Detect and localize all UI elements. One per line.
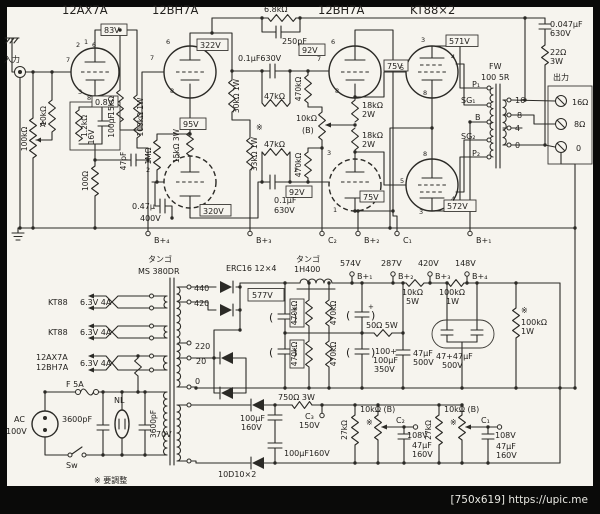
lbl-out8: 8Ω [574, 120, 585, 129]
lbl-v150: 150V [299, 421, 320, 430]
lbl-r18k-a: 18kΩ [362, 101, 383, 110]
lbl-out16: 16Ω [572, 98, 588, 107]
lbl-r1m: 1MΩ [144, 147, 153, 164]
lbl-r18k-b: 18kΩ [362, 131, 383, 140]
lbl-p2: P₂ [472, 149, 480, 158]
lbl-c1-out: C₁ [481, 416, 490, 425]
lbl-out0: 0 [576, 144, 581, 153]
lbl-nl: NL [114, 396, 125, 405]
lbl-v420: 420V [418, 259, 439, 268]
lbl-canv: 500V [442, 361, 463, 370]
lbl-div1cv: 160V [412, 450, 433, 459]
pin: 8 [87, 94, 91, 102]
lbl-pot2: 10kΩ (B) [444, 405, 479, 414]
lbl-bus-b2: B+₂ [364, 236, 379, 245]
lbl-bleeder4: 470kΩ [329, 342, 338, 367]
pin: 7 [66, 56, 70, 64]
lbl-heater2: KT88 [48, 328, 68, 337]
lbl-v577: 577V [252, 291, 273, 300]
lbl-v70: 70V [156, 430, 172, 439]
lbl-470k-a: 470kΩ [294, 77, 303, 102]
title-kt88: KT88×2 [410, 3, 455, 17]
lbl-heater1v: 6.3V 4A [80, 298, 112, 307]
lbl-v400: 400V [140, 214, 161, 223]
lbl-cc2b: 630V [274, 206, 295, 215]
lbl-pt-brand: タンゴ [148, 254, 172, 264]
lbl-c47u: 47µF [413, 349, 433, 358]
lbl-v571: 571V [449, 37, 470, 46]
lbl-zobel-r: 22Ω [550, 48, 566, 57]
lbl-opt-fw: FW [489, 62, 502, 71]
lbl-cbias1b: 160V [241, 423, 262, 432]
lbl-note: ※ 要調整 [94, 475, 127, 485]
lbl-cb1: 100+ [375, 347, 397, 356]
lbl-v92a: 92V [302, 46, 318, 55]
pin: 5 [400, 177, 404, 185]
lbl-zobel-cv: 630V [550, 29, 571, 38]
lbl-ps-b2: B+₂ [398, 272, 413, 281]
lbl-v148: 148V [455, 259, 476, 268]
terminal-b4 [146, 231, 150, 235]
lbl-v322: 322V [200, 41, 221, 50]
terminal-b3 [248, 231, 252, 235]
lbl-d10: 10D10×2 [218, 470, 256, 479]
lbl-r750: 750Ω 3W [278, 393, 315, 402]
lbl-spark2: 3600pF [149, 410, 158, 438]
lbl-heater3a: 12AX7A [36, 353, 68, 362]
lbl-sec16: 16 [515, 96, 525, 105]
pin: 6 [166, 38, 170, 46]
terminal-c2 [320, 231, 324, 235]
lbl-pot2-adj: ※ [450, 418, 457, 427]
lbl-gridr: 10kΩ [39, 106, 48, 126]
lbl-pot1: 10kΩ (B) [360, 405, 395, 414]
pin: 5 [400, 64, 404, 72]
lbl-bus-c2: C₂ [328, 236, 337, 245]
lbl-tap0: 0 [195, 377, 200, 386]
lbl-bus-b3: B+₃ [256, 236, 271, 245]
lbl-adjr2: 100kΩ [521, 318, 547, 327]
lbl-btap: B [475, 113, 481, 122]
switch-pole-1 [68, 453, 72, 457]
switch-pole-2 [82, 453, 86, 457]
lbl-zobel-c: 0.047µF [550, 20, 583, 29]
title-12bh7a-2: 12BH7A [318, 3, 364, 17]
lbl-heater1: KT88 [48, 298, 68, 307]
pin: 2 [294, 166, 298, 174]
title-12ax7a: 12AX7A [62, 3, 108, 17]
lbl-sec8: 8 [517, 111, 522, 120]
pin: 6 [92, 41, 96, 49]
lbl-output: 出力 [553, 72, 569, 82]
lbl-ckv: 16V [87, 129, 96, 145]
lbl-ps-b3: B+₃ [435, 272, 450, 281]
lbl-r18k-bw: 2W [362, 140, 375, 149]
lbl-bus-c1: C₁ [403, 236, 412, 245]
lbl-ps-b1: B+₁ [357, 272, 372, 281]
lbl-div2c: 47µF [496, 442, 516, 451]
lbl-p1: P₁ [472, 80, 480, 89]
pin: 7 [317, 55, 321, 63]
lbl-fuse: F 5A [66, 380, 84, 389]
lbl-sg1: SG₁ [461, 96, 475, 105]
lbl-r50: 50Ω 5W [366, 321, 398, 330]
lbl-ac: AC [14, 415, 25, 424]
lbl-v83: 83V [104, 26, 120, 35]
lbl-tap420: 420 [194, 299, 209, 308]
lbl-v320: 320V [203, 207, 224, 216]
scanned-schematic-page: 12AX7A 12BH7A 12BH7A KT88×2 6.8kΩ 250pF … [0, 0, 600, 514]
lbl-bal: 10kΩ [296, 114, 317, 123]
lbl-sw: Sw [66, 461, 78, 470]
pin: 8 [423, 89, 427, 97]
lbl-pt-model: MS 380DR [138, 267, 180, 276]
lbl-drop2w: 1W [446, 297, 459, 306]
lbl-tap440: 440 [194, 284, 209, 293]
pin: 3 [176, 152, 180, 160]
lbl-drop2: 100kΩ [439, 288, 465, 297]
lbl-choke-model: 1H400 [294, 265, 320, 274]
lbl-cb3: 350V [374, 365, 395, 374]
lbl-r33k: 33kΩ 1W [250, 136, 259, 171]
lbl-fb-r: 6.8kΩ [264, 5, 287, 14]
lbl-opt-model: 100 5R [481, 73, 510, 82]
schematic-svg: 12AX7A 12BH7A 12BH7A KT88×2 6.8kΩ 250pF … [0, 0, 600, 514]
lbl-c47uv: 500V [413, 358, 434, 367]
lbl-sec0: 0 [515, 141, 520, 150]
pin: 8 [170, 87, 174, 95]
lbl-ac100: 100V [6, 427, 27, 436]
pin: 1 [333, 206, 337, 214]
lbl-c047: 0.47µ [132, 202, 155, 211]
lbl-v572: 572V [447, 202, 468, 211]
lbl-r47k-a: 47kΩ [264, 92, 285, 101]
lbl-r100: 100Ω [81, 171, 90, 191]
lbl-bus-b1: B+₁ [476, 236, 491, 245]
pin: 2 [146, 166, 150, 174]
fuse-end-2 [94, 390, 99, 395]
lbl-cb2: 100µF [373, 356, 398, 365]
lbl-div2cv: 160V [496, 451, 517, 460]
lbl-fb-c: 250pF [282, 37, 307, 46]
pin: 3 [421, 36, 425, 44]
title-12bh7a-1: 12BH7A [152, 3, 198, 17]
lbl-27k-2: 27kΩ [424, 420, 433, 440]
pin: 3 [419, 208, 423, 216]
lbl-cc1: 0.1µF630V [238, 54, 282, 63]
pin: 6 [331, 38, 335, 46]
lbl-choke-brand: タンゴ [296, 254, 320, 264]
lbl-r100k1w: 100kΩ 1W [136, 97, 145, 137]
terminal-c3 [320, 413, 324, 417]
lbl-heater3v: 6.3V 4A [80, 359, 112, 368]
lbl-drop1: 10kΩ [402, 288, 423, 297]
lbl-div1c: 47µF [412, 441, 432, 450]
lbl-zobel-rw: 3W [550, 57, 563, 66]
lbl-cc2a: 0.1µF [274, 196, 297, 205]
lbl-r30k: 30kΩ 1W [232, 78, 241, 113]
lbl-drop1w: 5W [406, 297, 419, 306]
lbl-vol-r: 100kΩ [20, 127, 29, 152]
lbl-pot1-adj: ※ [366, 418, 373, 427]
paren: ( [346, 309, 350, 322]
lbl-adjr3: 1W [521, 327, 534, 336]
lbl-cbias1a: 100µF [240, 414, 265, 423]
pin: 3 [78, 88, 82, 96]
lbl-ck: 100µF [107, 114, 116, 137]
lbl-rectifier: ERC16 12×4 [226, 264, 277, 273]
lbl-tap220: 220 [195, 342, 210, 351]
lbl-v574: 574V [340, 259, 361, 268]
pin: 1 [84, 38, 88, 46]
pin: 2 [76, 41, 80, 49]
lbl-c1-v: 108V [495, 431, 516, 440]
watermark: [750x619] https://upic.me [451, 494, 589, 506]
lbl-27k-1: 27kΩ [340, 420, 349, 440]
lbl-ps-b4: B+₄ [472, 272, 487, 281]
lbl-r18k-aw: 2W [362, 110, 375, 119]
lbl-v95: 95V [183, 120, 199, 129]
lbl-sec4: 4 [515, 124, 520, 133]
lbl-bleeder1: 470kΩ [290, 301, 299, 326]
lbl-c2-out: C₂ [396, 416, 405, 425]
paren: ( [269, 346, 273, 359]
paren: ( [269, 311, 273, 324]
lbl-c47p: 47pF [119, 152, 128, 171]
fuse-end-1 [76, 390, 81, 395]
paren: ) [371, 346, 375, 359]
lbl-v287: 287V [381, 259, 402, 268]
lbl-adjr: ※ [521, 306, 528, 315]
terminal-b1 [468, 231, 472, 235]
lbl-bleeder2: 470kΩ [290, 342, 299, 367]
polarity-mark: + [368, 303, 374, 311]
lbl-can: 47+47µF [436, 352, 473, 361]
lbl-tap20: 20 [196, 357, 206, 366]
lbl-input: 入力 [4, 54, 20, 64]
lbl-heater2v: 6.3V 4A [80, 328, 112, 337]
lbl-cbias2: 100µF160V [284, 449, 330, 458]
pin: 4 [451, 53, 455, 61]
lbl-bleeder3: 470kΩ [329, 301, 338, 326]
pin: 8 [423, 150, 427, 158]
lbl-bal-b: (B) [302, 126, 314, 135]
lbl-bus-b4: B+₄ [154, 236, 169, 245]
lbl-heater3b: 12BH7A [36, 363, 69, 372]
lbl-sg2: SG₂ [461, 132, 475, 141]
lbl-v75b: 75V [363, 193, 379, 202]
lbl-spark1: 3600pF [62, 415, 92, 424]
pin: 4 [451, 195, 455, 203]
terminal-b2 [356, 231, 360, 235]
lbl-r47k-b: 47kΩ [264, 140, 285, 149]
paren: ( [346, 346, 350, 359]
pin: 8 [335, 87, 339, 95]
lbl-adj-47k: ※ [256, 123, 263, 132]
lbl-r15k: 15kΩ [107, 96, 116, 116]
pin: 7 [150, 54, 154, 62]
pin: 3 [327, 149, 331, 157]
terminal-c1 [395, 231, 399, 235]
lbl-c3: C₃ [305, 412, 314, 421]
